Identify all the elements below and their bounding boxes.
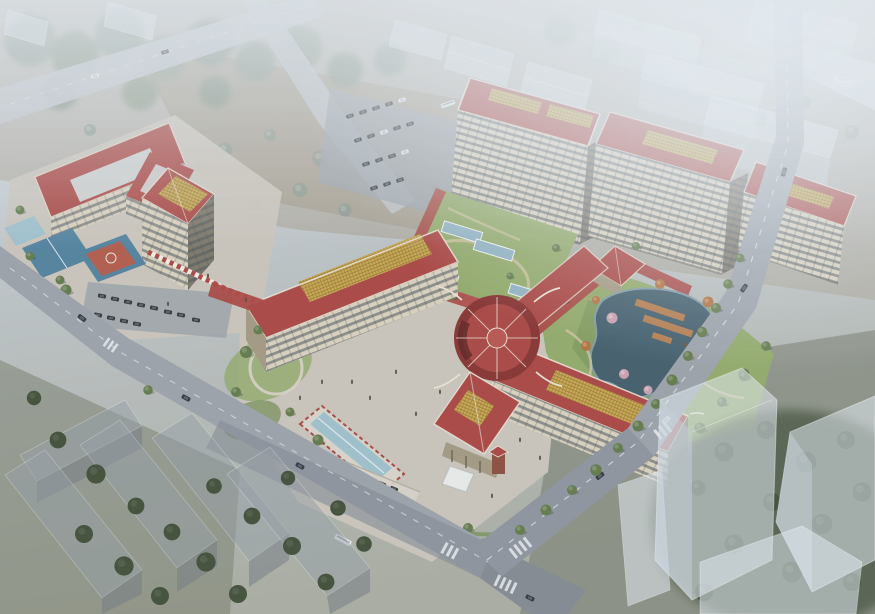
aerial-rendering-image [0, 0, 875, 614]
rendering-canvas [0, 0, 875, 614]
atmosphere-haze [0, 0, 875, 614]
